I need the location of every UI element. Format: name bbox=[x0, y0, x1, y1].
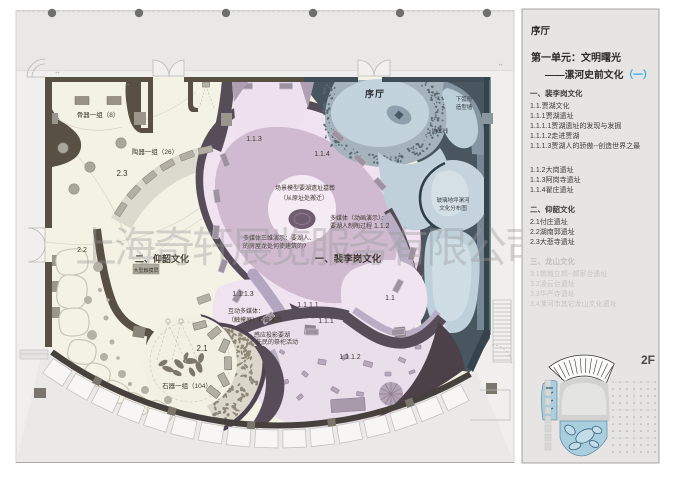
svg-text:1.1.4翟庄遗址: 1.1.4翟庄遗址 bbox=[530, 185, 574, 194]
svg-text:感应投影要湖: 感应投影要湖 bbox=[254, 331, 290, 339]
svg-text:造型墙: 造型墙 bbox=[456, 103, 473, 111]
svg-text:2.3: 2.3 bbox=[116, 169, 128, 178]
svg-text:++: ++ bbox=[498, 62, 503, 67]
svg-text:1.1.3: 1.1.3 bbox=[246, 136, 262, 143]
svg-text:1.1: 1.1 bbox=[385, 295, 395, 302]
svg-text:文化分布图: 文化分布图 bbox=[439, 204, 467, 212]
svg-text:石器一组（104）: 石器一组（104） bbox=[162, 381, 212, 390]
svg-text:骨器一组（8）: 骨器一组（8） bbox=[77, 110, 120, 119]
svg-text:++: ++ bbox=[55, 70, 60, 75]
svg-text:1.1.1.1贾湖遗址的发现与发掘: 1.1.1.1贾湖遗址的发现与发掘 bbox=[530, 121, 621, 130]
svg-text:互动多媒体：: 互动多媒体： bbox=[228, 307, 264, 315]
svg-text:3.4漯河市其它龙山文化遗址: 3.4漯河市其它龙山文化遗址 bbox=[530, 299, 617, 308]
svg-text:1.1.1.3贾湖人的骄傲--创造世界之最: 1.1.1.3贾湖人的骄傲--创造世界之最 bbox=[530, 141, 640, 150]
svg-text:2.1: 2.1 bbox=[196, 344, 208, 353]
svg-text:三、龙山文化: 三、龙山文化 bbox=[530, 256, 575, 266]
svg-text:3.1筑城立邦--郝家台遗址: 3.1筑城立邦--郝家台遗址 bbox=[530, 269, 607, 278]
svg-text:3.3华严寺遗址: 3.3华严寺遗址 bbox=[530, 289, 575, 298]
svg-text:2.1付庄遗址: 2.1付庄遗址 bbox=[530, 217, 568, 226]
svg-text:一、裴李岗文化: 一、裴李岗文化 bbox=[530, 88, 583, 98]
svg-text:地面线: 地面线 bbox=[432, 127, 449, 135]
svg-text:++: ++ bbox=[125, 82, 130, 87]
svg-text:1.1.2大岗遗址: 1.1.2大岗遗址 bbox=[530, 165, 574, 174]
svg-text:2.3大悲寺遗址: 2.3大悲寺遗址 bbox=[530, 237, 575, 246]
svg-text:序厅: 序厅 bbox=[531, 25, 551, 37]
svg-text:陶器一组（26）: 陶器一组（26） bbox=[132, 147, 178, 156]
svg-text:3.2凌云台遗址: 3.2凌云台遗址 bbox=[530, 279, 575, 288]
svg-text:先民的祭祀活动: 先民的祭祀活动 bbox=[256, 338, 298, 346]
svg-text:1.1.4: 1.1.4 bbox=[314, 151, 330, 158]
svg-text:1.1.1贾湖遗址: 1.1.1贾湖遗址 bbox=[530, 111, 574, 120]
svg-text:1.1.贾湖文化: 1.1.贾湖文化 bbox=[530, 101, 570, 110]
svg-text:序厅: 序厅 bbox=[365, 88, 385, 99]
svg-text:（触摸屏）骨笛演示: （触摸屏）骨笛演示 bbox=[228, 316, 282, 324]
svg-text:玻璃地坪漯河: 玻璃地坪漯河 bbox=[436, 196, 470, 204]
svg-text:1.1.1.2: 1.1.1.2 bbox=[339, 354, 361, 361]
svg-text:场景模型要湖遗址墓葬: 场景模型要湖遗址墓葬 bbox=[275, 184, 335, 192]
svg-text:1.1.1.2走进贾湖: 1.1.1.2走进贾湖 bbox=[530, 131, 579, 140]
svg-text:2F: 2F bbox=[641, 353, 655, 367]
svg-text:二、仰韶文化: 二、仰韶文化 bbox=[530, 204, 575, 214]
svg-text:1.1.1: 1.1.1 bbox=[318, 318, 334, 325]
svg-text:上海奇轩展览服务有限公司: 上海奇轩展览服务有限公司 bbox=[75, 224, 543, 271]
svg-text:2.2湖南郭遗址: 2.2湖南郭遗址 bbox=[530, 227, 575, 236]
svg-text:下弧形: 下弧形 bbox=[456, 95, 473, 103]
svg-text:第一单元：文明曙光: 第一单元：文明曙光 bbox=[531, 51, 621, 64]
svg-text:1.1.1.3: 1.1.1.3 bbox=[232, 291, 254, 298]
svg-text:——漯河史前文化（一）: ——漯河史前文化（一） bbox=[545, 68, 653, 81]
svg-text:1.1.1.1: 1.1.1.1 bbox=[297, 302, 319, 309]
svg-text:多媒体（动画演示）：: 多媒体（动画演示）： bbox=[330, 214, 387, 222]
svg-text:（从原址处搬迁）: （从原址处搬迁） bbox=[280, 194, 328, 202]
svg-text:1.1.3阿岗寺遗址: 1.1.3阿岗寺遗址 bbox=[530, 175, 581, 184]
